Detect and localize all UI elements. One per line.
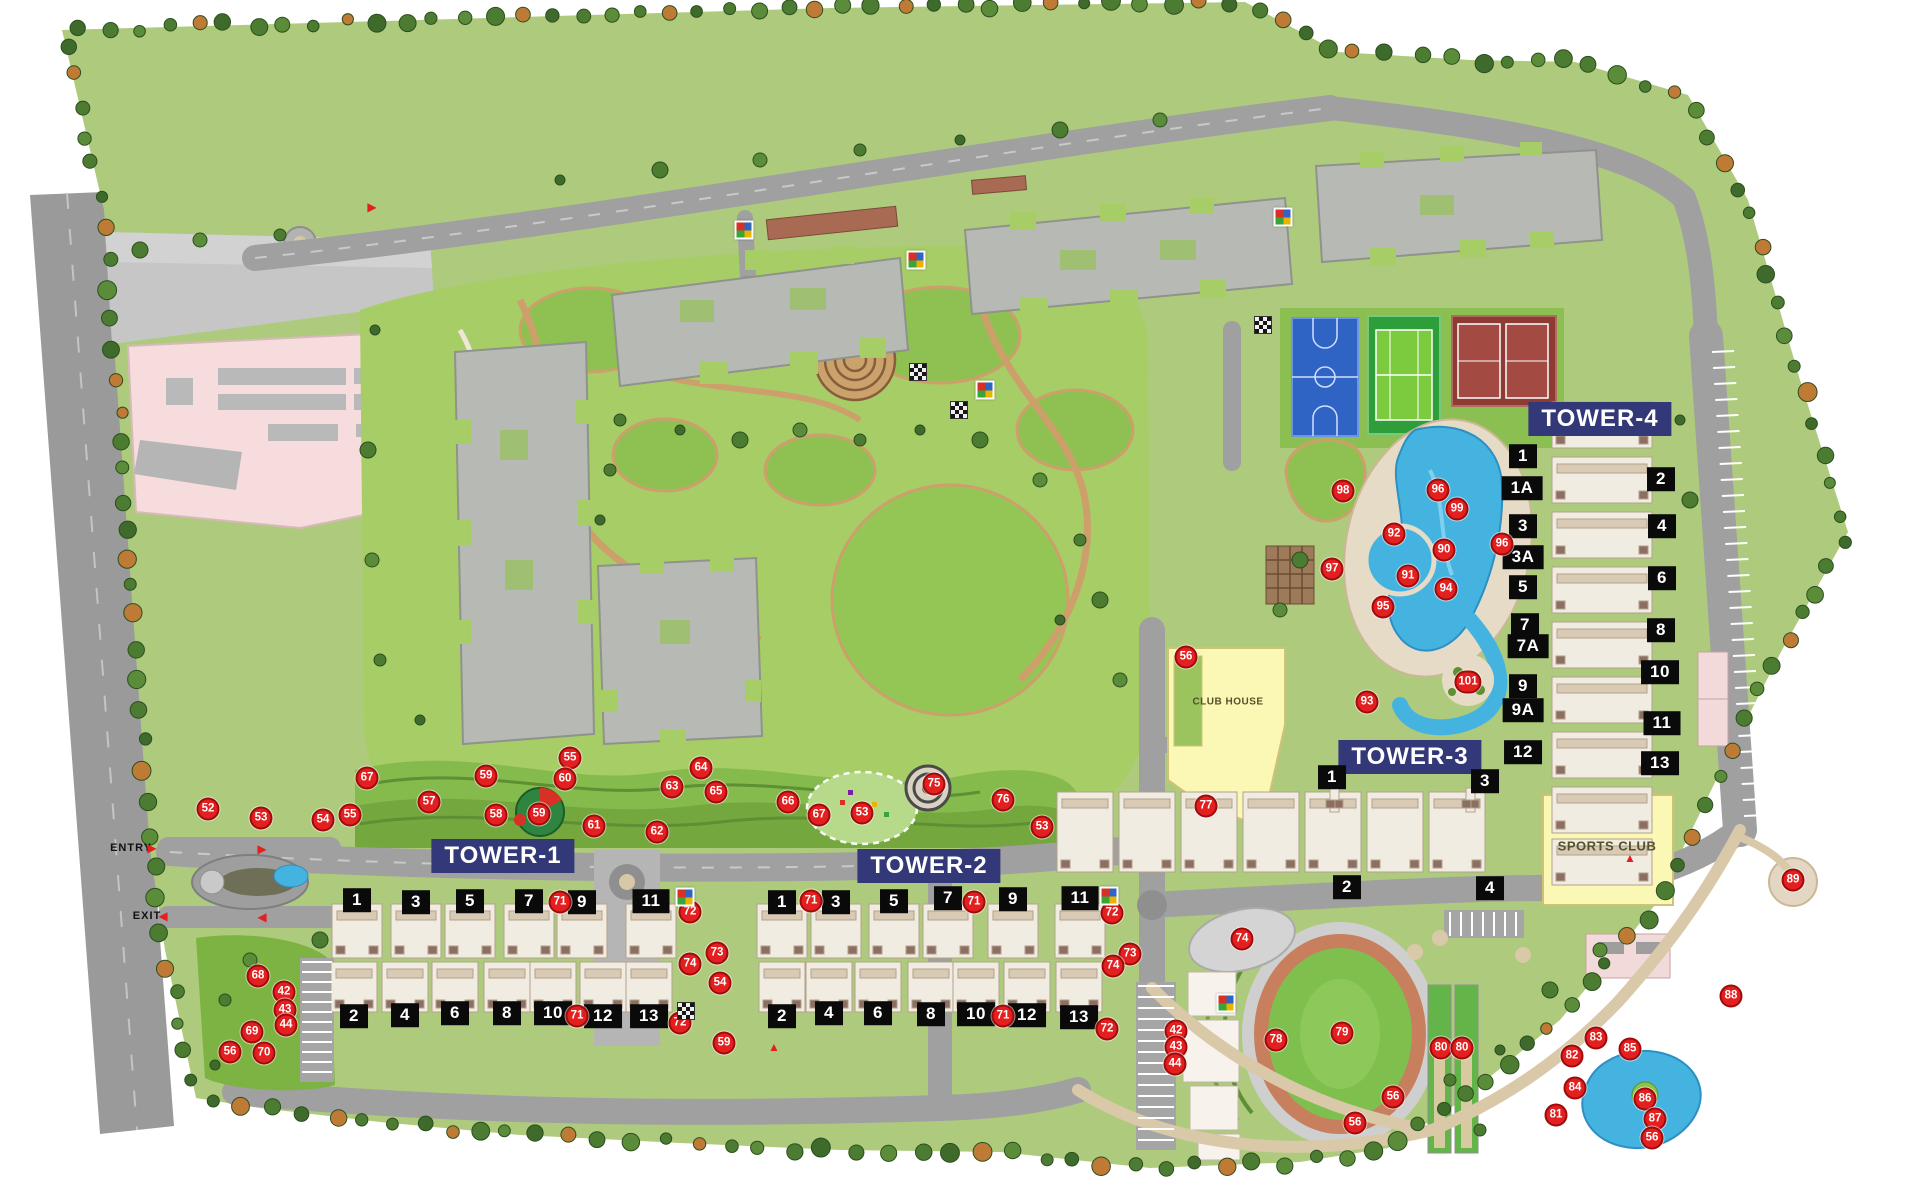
unit-number-badge: 2 bbox=[340, 1004, 368, 1028]
checkered-paving-icon bbox=[909, 363, 927, 381]
unit-number-badge: 9 bbox=[1509, 674, 1537, 698]
map-marker-74: 74 bbox=[1231, 928, 1254, 951]
unit-number-badge: 4 bbox=[391, 1003, 419, 1027]
map-marker-74: 74 bbox=[1102, 955, 1125, 978]
tower-label-3: TOWER-3 bbox=[1338, 740, 1481, 774]
map-marker-73: 73 bbox=[706, 942, 729, 965]
play-area-icon bbox=[976, 381, 995, 400]
map-marker-80: 80 bbox=[1430, 1037, 1453, 1060]
map-marker-65: 65 bbox=[705, 781, 728, 804]
unit-number-badge: 13 bbox=[630, 1004, 668, 1028]
map-marker-44: 44 bbox=[1164, 1053, 1187, 1076]
map-marker-85: 85 bbox=[1619, 1038, 1642, 1061]
unit-number-badge: 4 bbox=[815, 1001, 843, 1025]
map-marker-58: 58 bbox=[485, 804, 508, 827]
map-marker-89: 89 bbox=[1782, 869, 1805, 892]
unit-number-badge: 3 bbox=[1509, 514, 1537, 538]
unit-number-badge: 1 bbox=[768, 890, 796, 914]
unit-number-badge: 8 bbox=[493, 1001, 521, 1025]
map-marker-74: 74 bbox=[679, 953, 702, 976]
map-marker-71: 71 bbox=[800, 890, 823, 913]
map-marker-67: 67 bbox=[356, 767, 379, 790]
play-area-icon bbox=[735, 221, 754, 240]
map-marker-83: 83 bbox=[1585, 1027, 1608, 1050]
map-marker-53: 53 bbox=[1031, 816, 1054, 839]
unit-number-badge: 7 bbox=[934, 886, 962, 910]
map-marker-70: 70 bbox=[253, 1042, 276, 1065]
direction-arrow: ▶ bbox=[257, 843, 266, 855]
unit-number-badge: 2 bbox=[768, 1004, 796, 1028]
entry-label: ENTRY bbox=[110, 842, 152, 854]
unit-number-badge: 11 bbox=[633, 889, 670, 913]
unit-number-badge: 1 bbox=[343, 888, 371, 912]
map-marker-53: 53 bbox=[250, 807, 273, 830]
unit-number-badge: 3 bbox=[402, 890, 430, 914]
checkered-paving-icon bbox=[1254, 316, 1272, 334]
map-marker-56: 56 bbox=[1175, 646, 1198, 669]
map-marker-95: 95 bbox=[1372, 596, 1395, 619]
direction-arrow: ▲ bbox=[1624, 852, 1636, 864]
map-marker-81: 81 bbox=[1545, 1104, 1568, 1127]
map-marker-90: 90 bbox=[1433, 539, 1456, 562]
map-marker-71: 71 bbox=[992, 1005, 1015, 1028]
map-marker-53: 53 bbox=[851, 802, 874, 825]
map-marker-98: 98 bbox=[1332, 480, 1355, 503]
unit-number-badge: 9A bbox=[1503, 698, 1544, 722]
unit-number-badge: 9 bbox=[568, 890, 596, 914]
map-marker-84: 84 bbox=[1564, 1077, 1587, 1100]
unit-number-badge: 7A bbox=[1508, 634, 1549, 658]
amenity-label: SPORTS CLUB bbox=[1558, 839, 1657, 854]
unit-number-badge: 11 bbox=[1644, 711, 1681, 735]
unit-number-badge: 2 bbox=[1647, 467, 1675, 491]
map-marker-66: 66 bbox=[777, 791, 800, 814]
map-marker-68: 68 bbox=[247, 965, 270, 988]
tower-label-1: TOWER-1 bbox=[431, 839, 574, 873]
map-marker-71: 71 bbox=[549, 891, 572, 914]
map-overlay: ENTRY EXIT TOWER-113579112468101213TOWER… bbox=[0, 0, 1920, 1185]
unit-number-badge: 4 bbox=[1648, 514, 1676, 538]
map-marker-67: 67 bbox=[808, 804, 831, 827]
map-marker-93: 93 bbox=[1356, 691, 1379, 714]
map-marker-56: 56 bbox=[1344, 1112, 1367, 1135]
map-marker-61: 61 bbox=[583, 815, 606, 838]
play-area-icon bbox=[1217, 994, 1236, 1013]
map-marker-88: 88 bbox=[1720, 985, 1743, 1008]
checkered-paving-icon bbox=[677, 1002, 695, 1020]
map-marker-56: 56 bbox=[1382, 1086, 1405, 1109]
map-marker-97: 97 bbox=[1321, 558, 1344, 581]
unit-number-badge: 1 bbox=[1318, 765, 1346, 789]
unit-number-badge: 7 bbox=[515, 889, 543, 913]
exit-label: EXIT bbox=[133, 910, 161, 922]
map-marker-44: 44 bbox=[275, 1014, 298, 1037]
map-marker-52: 52 bbox=[197, 798, 220, 821]
map-marker-62: 62 bbox=[646, 821, 669, 844]
map-marker-80: 80 bbox=[1451, 1037, 1474, 1060]
map-marker-99: 99 bbox=[1446, 498, 1469, 521]
map-marker-56: 56 bbox=[219, 1041, 242, 1064]
map-marker-60: 60 bbox=[554, 768, 577, 791]
amenity-label: CLUB HOUSE bbox=[1192, 697, 1263, 708]
map-marker-71: 71 bbox=[566, 1005, 589, 1028]
map-marker-59: 59 bbox=[475, 765, 498, 788]
unit-number-badge: 1 bbox=[1509, 444, 1537, 468]
map-marker-55: 55 bbox=[559, 747, 582, 770]
map-marker-59: 59 bbox=[528, 803, 551, 826]
unit-number-badge: 6 bbox=[441, 1001, 469, 1025]
checkered-paving-icon bbox=[950, 401, 968, 419]
map-marker-96: 96 bbox=[1491, 533, 1514, 556]
map-marker-64: 64 bbox=[690, 757, 713, 780]
map-marker-101: 101 bbox=[1454, 671, 1481, 694]
unit-number-badge: 8 bbox=[1647, 618, 1675, 642]
map-marker-96: 96 bbox=[1427, 479, 1450, 502]
map-marker-55: 55 bbox=[339, 804, 362, 827]
map-marker-71: 71 bbox=[963, 891, 986, 914]
play-area-icon bbox=[907, 251, 926, 270]
map-marker-63: 63 bbox=[661, 776, 684, 799]
unit-number-badge: 8 bbox=[917, 1002, 945, 1026]
map-marker-54: 54 bbox=[709, 972, 732, 995]
unit-number-badge: 13 bbox=[1060, 1005, 1098, 1029]
map-marker-79: 79 bbox=[1331, 1022, 1354, 1045]
map-marker-92: 92 bbox=[1383, 523, 1406, 546]
tower-label-4: TOWER-4 bbox=[1528, 402, 1671, 436]
unit-number-badge: 2 bbox=[1333, 875, 1361, 899]
map-marker-54: 54 bbox=[312, 809, 335, 832]
map-marker-59: 59 bbox=[713, 1032, 736, 1055]
unit-number-badge: 12 bbox=[584, 1004, 622, 1028]
direction-arrow: ◀ bbox=[158, 910, 167, 922]
direction-arrow: ▶ bbox=[367, 201, 376, 213]
map-marker-94: 94 bbox=[1435, 578, 1458, 601]
unit-number-badge: 5 bbox=[880, 889, 908, 913]
unit-number-badge: 6 bbox=[1648, 566, 1676, 590]
map-marker-76: 76 bbox=[992, 789, 1015, 812]
tower-label-2: TOWER-2 bbox=[857, 849, 1000, 883]
unit-number-badge: 3 bbox=[1471, 769, 1499, 793]
unit-number-badge: 12 bbox=[1504, 740, 1542, 764]
unit-number-badge: 5 bbox=[1509, 575, 1537, 599]
direction-arrow: ◀ bbox=[257, 911, 266, 923]
unit-number-badge: 13 bbox=[1641, 751, 1679, 775]
direction-arrow: ▶ bbox=[147, 842, 156, 854]
unit-number-badge: 10 bbox=[957, 1002, 995, 1026]
map-marker-77: 77 bbox=[1195, 795, 1218, 818]
play-area-icon bbox=[676, 888, 695, 907]
map-marker-75: 75 bbox=[923, 773, 946, 796]
map-marker-91: 91 bbox=[1397, 565, 1420, 588]
unit-number-badge: 10 bbox=[1641, 660, 1679, 684]
play-area-icon bbox=[1100, 887, 1119, 906]
map-marker-56: 56 bbox=[1641, 1127, 1664, 1150]
unit-number-badge: 3 bbox=[822, 890, 850, 914]
play-area-icon bbox=[1274, 208, 1293, 227]
map-marker-69: 69 bbox=[241, 1021, 264, 1044]
map-marker-57: 57 bbox=[418, 791, 441, 814]
unit-number-badge: 1A bbox=[1502, 476, 1543, 500]
map-marker-72: 72 bbox=[1096, 1018, 1119, 1041]
map-marker-82: 82 bbox=[1561, 1045, 1584, 1068]
direction-arrow: ▲ bbox=[768, 1041, 780, 1053]
unit-number-badge: 9 bbox=[999, 887, 1027, 911]
unit-number-badge: 4 bbox=[1476, 876, 1504, 900]
unit-number-badge: 6 bbox=[864, 1001, 892, 1025]
map-marker-78: 78 bbox=[1265, 1029, 1288, 1052]
site-plan-map: ENTRY EXIT TOWER-113579112468101213TOWER… bbox=[0, 0, 1920, 1185]
unit-number-badge: 11 bbox=[1062, 886, 1099, 910]
unit-number-badge: 5 bbox=[456, 889, 484, 913]
